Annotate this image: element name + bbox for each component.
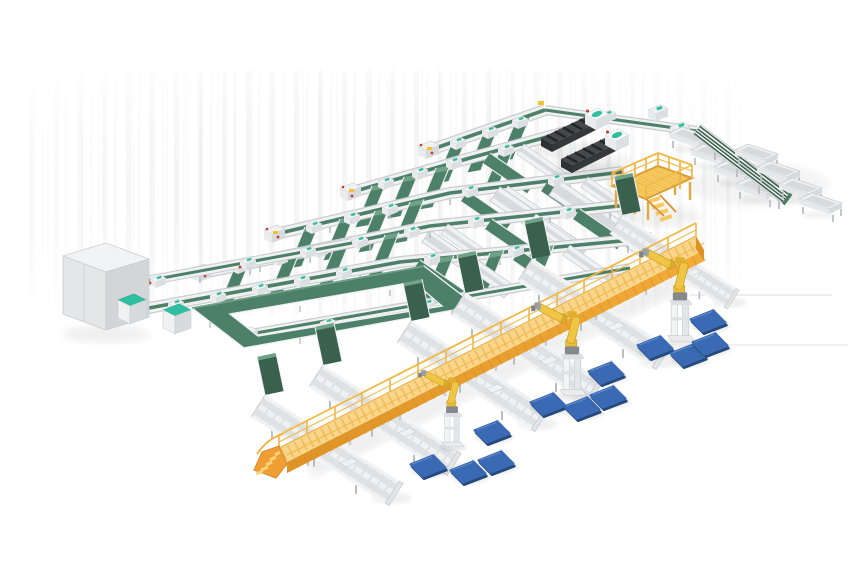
spur-tray (799, 193, 842, 222)
row-tip-station (418, 141, 439, 159)
factory-scene-svg: Isometric 3D render of an automated conv… (0, 0, 860, 580)
pallet (479, 449, 518, 475)
pallet (589, 360, 628, 386)
buffer-cabinet (118, 294, 146, 324)
pallet (475, 419, 514, 445)
row-tip-station (264, 225, 285, 243)
buffer-cabinet (163, 304, 191, 334)
row-tip-station (340, 183, 361, 201)
pallet (691, 308, 730, 334)
incline-feed (257, 353, 284, 395)
factory-render: Isometric 3D render of an automated conv… (0, 0, 860, 580)
pallet (693, 331, 732, 357)
